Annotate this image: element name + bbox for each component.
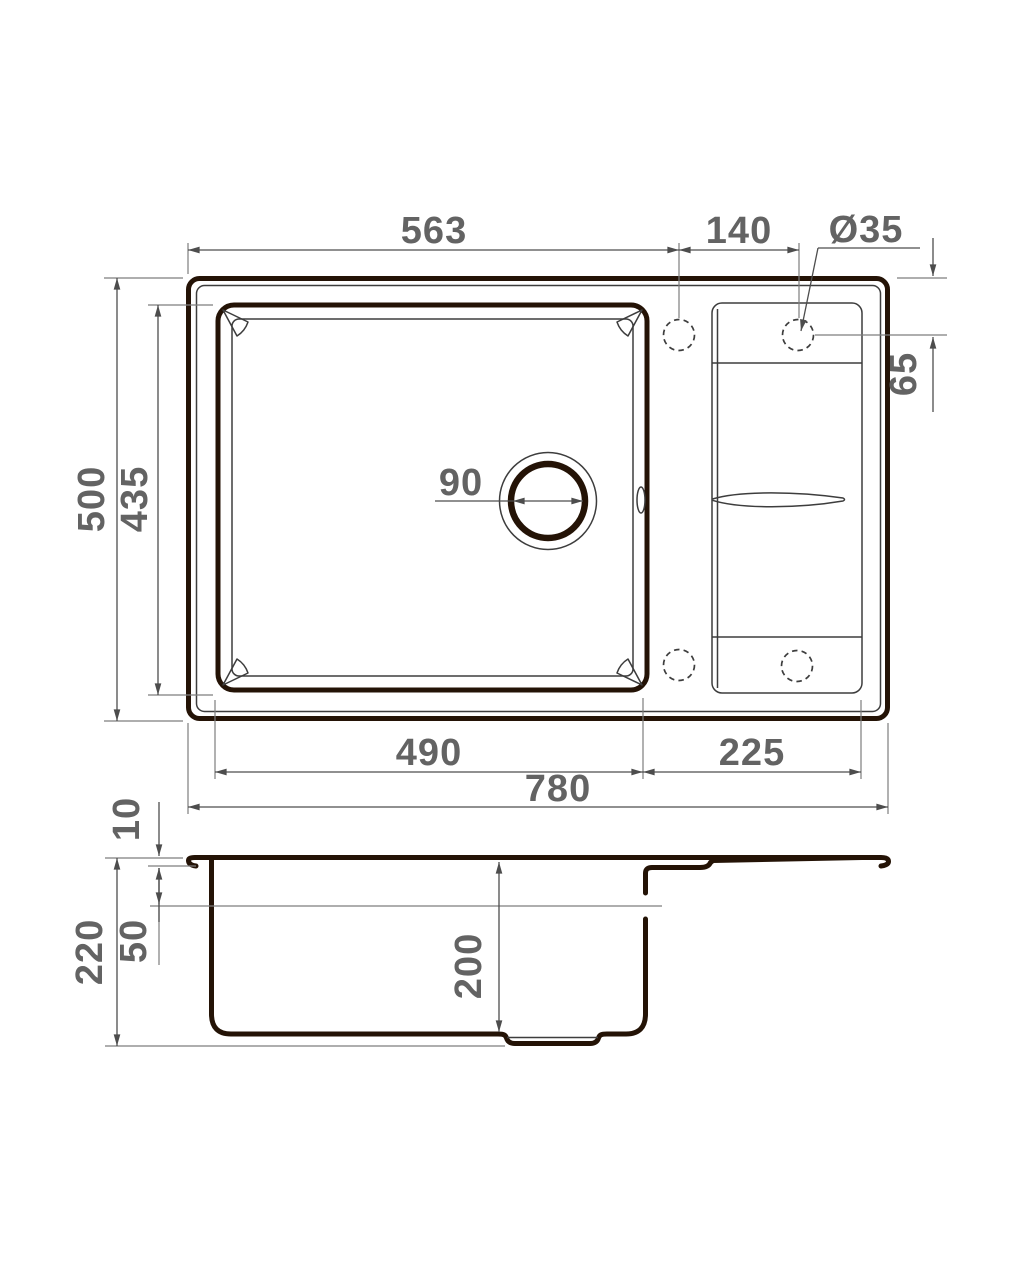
dim-overflow-offset: 50 <box>113 919 155 963</box>
dim-hole-edge-offset: 65 <box>883 352 925 396</box>
bowl-section-profile <box>212 860 646 1044</box>
bowl-bottom-edge <box>232 319 633 676</box>
dim-drain-diameter: 90 <box>439 462 483 504</box>
bowl-corner-chamfer <box>617 310 642 336</box>
drawing-svg: 563 140 Ø35 65 500 435 90 490 225 780 10… <box>0 0 1024 1265</box>
dim-edge-to-hole: 563 <box>401 210 467 252</box>
dim-total-height: 220 <box>69 919 111 985</box>
dim-faucet-hole-diameter: Ø35 <box>829 209 904 251</box>
drainboard-center-groove <box>713 493 845 507</box>
dim-hole-pitch: 140 <box>706 210 772 252</box>
faucet-hole-option <box>664 650 695 681</box>
sink-outer-edge <box>189 279 888 719</box>
side-view <box>189 858 889 1044</box>
dim-bowl-cutout-depth: 435 <box>114 466 156 532</box>
dim-bowl-width: 490 <box>396 732 462 774</box>
bowl-corner-chamfer <box>617 659 642 685</box>
dimension-labels: 563 140 Ø35 65 500 435 90 490 225 780 10… <box>69 209 925 999</box>
dim-overall-width: 780 <box>525 768 591 810</box>
top-view <box>189 279 888 719</box>
faucet-hole-option <box>664 320 695 351</box>
dim-bowl-inner-depth: 200 <box>448 933 490 999</box>
dim-overall-depth: 500 <box>71 466 113 532</box>
sink-technical-drawing: 563 140 Ø35 65 500 435 90 490 225 780 10… <box>0 0 1024 1265</box>
faucet-hole-option <box>783 320 814 351</box>
dim-rim-height: 10 <box>106 797 148 841</box>
dim-wing-width: 225 <box>719 732 785 774</box>
bowl-corner-chamfer <box>223 310 248 336</box>
drainboard-section-profile <box>646 858 863 894</box>
bowl-corner-chamfer <box>223 659 248 685</box>
overflow-slot <box>637 487 645 513</box>
sink-inner-rim-line <box>197 286 881 712</box>
dimension-lines <box>117 238 933 1046</box>
faucet-hole-option <box>782 651 813 682</box>
